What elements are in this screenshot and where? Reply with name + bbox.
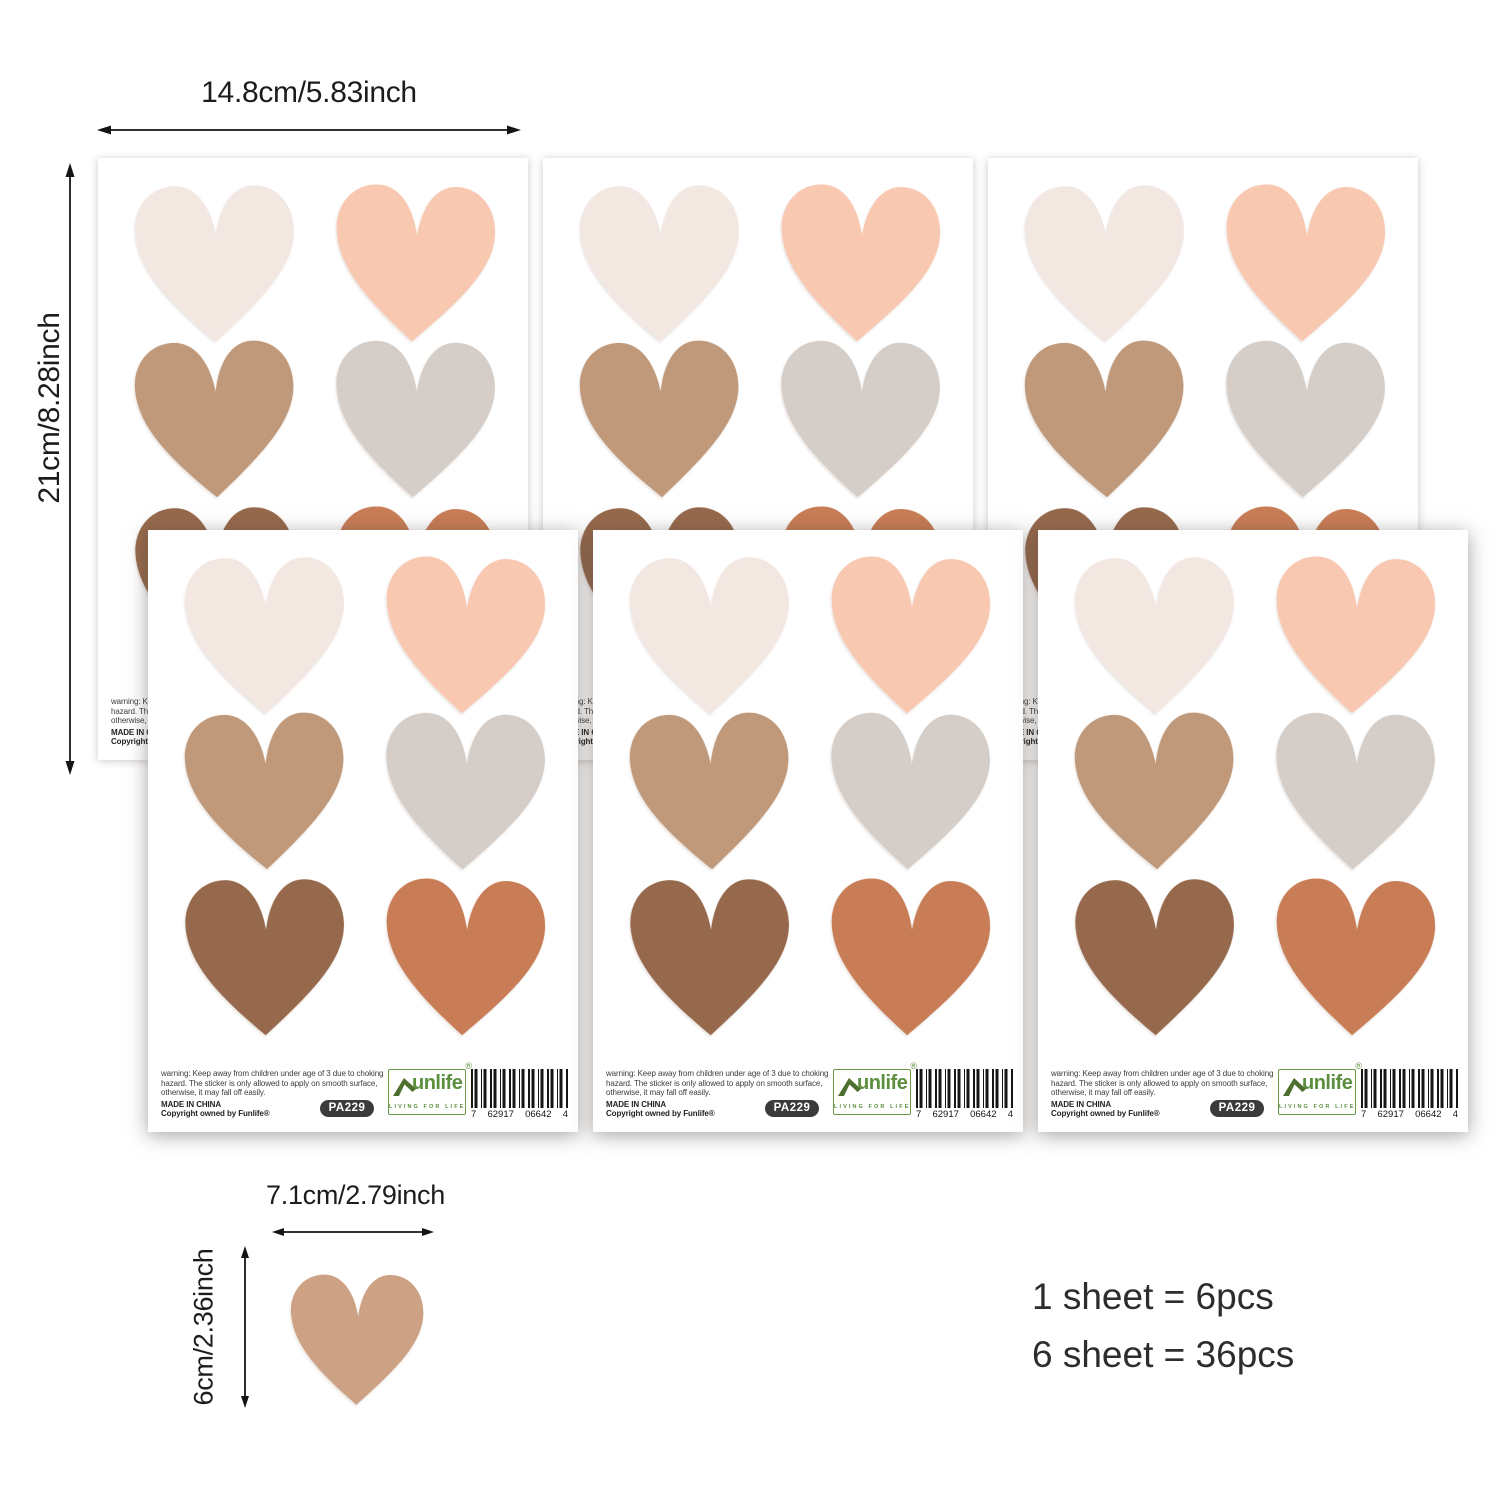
heart-shape-tan — [628, 711, 792, 872]
heart-shape-peach — [334, 183, 497, 343]
piece-count-note: 1 sheet = 6pcs 6 sheet = 36pcs — [1032, 1268, 1294, 1384]
heart-shape-tan — [183, 711, 347, 872]
heart-sticker-gray — [1262, 696, 1447, 877]
piece-count-line-2: 6 sheet = 36pcs — [1032, 1326, 1294, 1384]
heart-sticker-cream — [122, 168, 307, 349]
heart-sticker-peach — [322, 168, 509, 351]
barcode-digit-check: 4 — [1008, 1109, 1013, 1120]
heart-shape-tan — [578, 339, 742, 500]
warning-line-3: otherwise, it may fall off easily. — [606, 1088, 828, 1098]
heart-shape-gray — [829, 712, 990, 871]
barcode-digit-group2: 06642 — [1415, 1109, 1441, 1120]
warning-line-1: warning: Keep away from children under a… — [161, 1069, 383, 1079]
product-image-canvas: warning: Keep away from children under a… — [0, 0, 1500, 1500]
heart-sticker-gray — [767, 324, 952, 505]
heart-shape-cream — [630, 556, 791, 715]
heart-sticker-gray — [322, 324, 507, 505]
heart-shape-cream — [1025, 184, 1186, 343]
warning-line-1: warning: Keep away from children under a… — [606, 1069, 828, 1079]
warning-line-2: hazard. The sticker is only allowed to a… — [1051, 1079, 1273, 1089]
heart-sticker-brown — [172, 862, 357, 1043]
barcode-digits: 7 62917 06642 4 — [1361, 1109, 1458, 1120]
heart-shape-tan — [133, 339, 297, 500]
barcode-digits: 7 62917 06642 4 — [471, 1109, 568, 1120]
warning-line-3: otherwise, it may fall off easily. — [1051, 1088, 1273, 1098]
heart-sticker-brown — [617, 862, 802, 1043]
barcode: 7 62917 06642 4 — [916, 1069, 1013, 1120]
heart-shape-brown — [1075, 878, 1236, 1037]
logo-tagline: LIVING FOR LIFE — [1279, 1104, 1355, 1110]
heart-shape-brown — [185, 878, 346, 1037]
heart-height-dimension-label: 6cm/2.36inch — [189, 1249, 220, 1406]
heart-sticker-gray — [372, 696, 557, 877]
heart-shape-cream — [185, 556, 346, 715]
heart-shape-peach — [779, 183, 942, 343]
heart-sticker-cream — [567, 168, 752, 349]
barcode-bars — [916, 1069, 1013, 1108]
heart-shape-peach — [829, 555, 992, 715]
warning-line-2: hazard. The sticker is only allowed to a… — [161, 1079, 383, 1089]
barcode-digit-group1: 62917 — [1377, 1109, 1403, 1120]
sku-badge: PA229 — [1210, 1100, 1264, 1117]
heart-width-arrow — [272, 1225, 434, 1239]
heart-shape-terracotta — [829, 877, 992, 1037]
heart-sticker-gray — [817, 696, 1002, 877]
heart-width-dimension-label: 7.1cm/2.79inch — [258, 1180, 453, 1211]
heart-sticker-tan — [566, 323, 754, 507]
heart-shape-cream — [1075, 556, 1236, 715]
sheet-width-arrow — [97, 122, 521, 138]
barcode-digits: 7 62917 06642 4 — [916, 1109, 1013, 1120]
logo-brand-text: unlife — [412, 1072, 462, 1095]
heart-sticker-cream — [172, 540, 357, 721]
heart-sticker-tan — [1061, 695, 1249, 879]
heart-shape-terracotta — [1274, 877, 1437, 1037]
warning-line-2: hazard. The sticker is only allowed to a… — [606, 1079, 828, 1089]
heart-sticker-peach — [1262, 540, 1449, 723]
logo-tagline: LIVING FOR LIFE — [389, 1104, 465, 1110]
heart-sticker-tan — [171, 695, 359, 879]
heart-sticker-gray — [1212, 324, 1397, 505]
heart-sticker-terracotta — [372, 862, 559, 1045]
heart-sticker-tan — [121, 323, 309, 507]
piece-count-line-1: 1 sheet = 6pcs — [1032, 1268, 1294, 1326]
warning-line-1: warning: Keep away from children under a… — [1051, 1069, 1273, 1079]
heart-sticker-cream — [617, 540, 802, 721]
heart-shape-tan — [1073, 711, 1237, 872]
heart-shape-terracotta — [384, 877, 547, 1037]
heart-sticker-cream — [1012, 168, 1197, 349]
logo-tagline: LIVING FOR LIFE — [834, 1104, 910, 1110]
heart-sticker-peach — [767, 168, 954, 351]
barcode-digit-check: 4 — [1453, 1109, 1458, 1120]
logo-brand-text: unlife — [857, 1072, 907, 1095]
heart-sticker-peach — [1212, 168, 1399, 351]
barcode-digit-lead: 7 — [916, 1109, 921, 1120]
barcode-digit-group1: 62917 — [932, 1109, 958, 1120]
heart-shape-brown — [630, 878, 791, 1037]
funlife-logo: unlife ® LIVING FOR LIFE — [1278, 1069, 1356, 1115]
heart-sticker-cream — [1062, 540, 1247, 721]
barcode-digit-group2: 06642 — [525, 1109, 551, 1120]
heart-shape-cream — [135, 184, 296, 343]
sku-badge: PA229 — [765, 1100, 819, 1117]
sample-heart-shape — [291, 1275, 423, 1405]
barcode-digit-check: 4 — [563, 1109, 568, 1120]
funlife-logo: unlife ® LIVING FOR LIFE — [388, 1069, 466, 1115]
heart-sticker-tan — [1011, 323, 1199, 507]
heart-sticker-brown — [1062, 862, 1247, 1043]
heart-sticker-peach — [817, 540, 1004, 723]
heart-height-arrow — [238, 1246, 252, 1408]
sample-heart-sticker — [281, 1261, 433, 1411]
barcode-digit-group2: 06642 — [970, 1109, 996, 1120]
heart-shape-cream — [580, 184, 741, 343]
sheet-height-arrow — [62, 163, 78, 775]
funlife-logo: unlife ® LIVING FOR LIFE — [833, 1069, 911, 1115]
sticker-sheet: warning: Keep away from children under a… — [148, 530, 578, 1132]
heart-shape-peach — [384, 555, 547, 715]
heart-shape-gray — [779, 340, 940, 499]
logo-brand-text: unlife — [1302, 1072, 1352, 1095]
heart-shape-peach — [1274, 555, 1437, 715]
heart-sticker-terracotta — [817, 862, 1004, 1045]
barcode-bars — [471, 1069, 568, 1108]
heart-sticker-tan — [616, 695, 804, 879]
sticker-sheet: warning: Keep away from children under a… — [593, 530, 1023, 1132]
barcode-digit-group1: 62917 — [487, 1109, 513, 1120]
heart-shape-tan — [1023, 339, 1187, 500]
heart-shape-gray — [1274, 712, 1435, 871]
barcode-digit-lead: 7 — [1361, 1109, 1366, 1120]
heart-shape-gray — [384, 712, 545, 871]
heart-shape-gray — [334, 340, 495, 499]
sheet-width-dimension-label: 14.8cm/5.83inch — [97, 76, 521, 110]
barcode-bars — [1361, 1069, 1458, 1108]
sticker-sheet: warning: Keep away from children under a… — [1038, 530, 1468, 1132]
warning-line-3: otherwise, it may fall off easily. — [161, 1088, 383, 1098]
barcode: 7 62917 06642 4 — [1361, 1069, 1458, 1120]
sku-badge: PA229 — [320, 1100, 374, 1117]
heart-shape-peach — [1224, 183, 1387, 343]
heart-sticker-peach — [372, 540, 559, 723]
heart-sticker-terracotta — [1262, 862, 1449, 1045]
barcode-digit-lead: 7 — [471, 1109, 476, 1120]
barcode: 7 62917 06642 4 — [471, 1069, 568, 1120]
heart-shape-gray — [1224, 340, 1385, 499]
